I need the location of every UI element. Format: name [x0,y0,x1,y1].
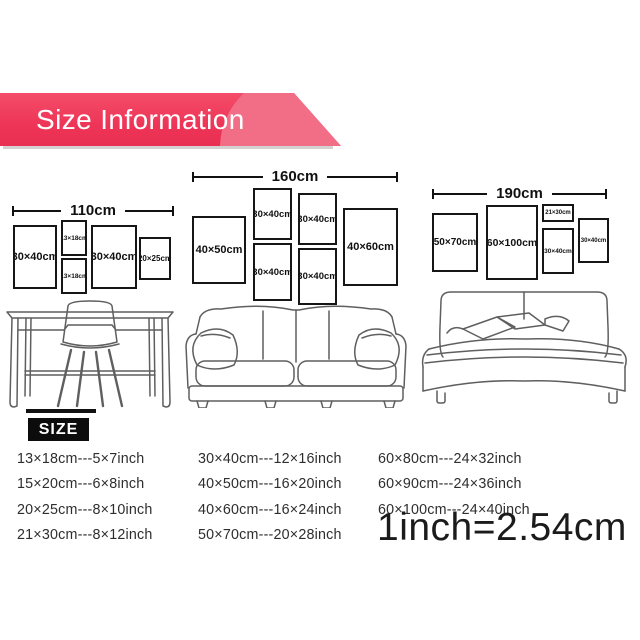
bed-illustration [417,287,637,405]
dimension-segment [327,176,396,178]
frame-40x50cm: 40×50cm [192,216,246,284]
dimension-line-160cm: 160cm [192,170,398,184]
frame-30x40cm: 30×40cm [298,248,337,305]
frame-30x40cm: 30×40cm [298,193,337,245]
size-row: 60×80cm---24×32inch [378,447,530,472]
size-row: 60×90cm---24×36inch [378,472,530,497]
frame-30x40cm: 30×40cm [578,218,609,263]
dimension-label: 190cm [487,187,552,201]
frame-size-label: 30×40cm [13,251,57,263]
dimension-tick-right [605,189,607,199]
size-row: 20×25cm---8×10inch [17,498,153,523]
sofa-illustration [181,302,411,408]
frame-size-label: 30×40cm [298,214,337,225]
frame-13x18cm: 13×18cm [61,258,87,294]
frame-size-label: 13×18cm [61,273,87,280]
size-row: 40×50cm---16×20inch [198,472,342,497]
dimension-segment [14,210,61,212]
size-row: 13×18cm---5×7inch [17,447,153,472]
desk-and-chair-illustration [4,299,176,415]
frame-size-label: 60×100cm [487,237,538,249]
frame-size-label: 21×30cm [545,210,571,216]
dimension-label: 160cm [263,170,328,184]
frame-size-label: 13×18cm [61,235,87,242]
frame-size-label: 30×40cm [581,238,607,244]
dimension-line-190cm: 190cm [432,187,607,201]
banner-title: Size Information [36,93,245,146]
frame-30x40cm: 30×40cm [253,188,292,240]
frame-size-label: 30×40cm [253,209,292,220]
frame-21x30cm: 21×30cm [542,204,574,222]
frame-size-label: 20×25cm [139,254,171,263]
frame-size-label: 30×40cm [253,267,292,278]
dimension-tick-right [396,172,398,182]
size-information-banner: Size Information [0,93,341,146]
size-row: 15×20cm---6×8inch [17,472,153,497]
frame-size-label: 30×40cm [544,248,572,255]
conversion-note: 1inch=2.54cm [377,506,627,550]
frame-size-label: 40×60cm [347,241,394,253]
dimension-segment [194,176,263,178]
size-row: 30×40cm---12×16inch [198,447,342,472]
frame-13x18cm: 13×18cm [61,220,87,256]
size-information-infographic: Size Information 110cm 30×40cm 13×18cm 1… [0,0,640,640]
banner-shadow [3,146,333,149]
frame-size-label: 30×40cm [298,271,337,282]
frame-60x100cm: 60×100cm [486,205,538,280]
frame-40x60cm: 40×60cm [343,208,398,286]
frame-30x40cm: 30×40cm [542,228,574,274]
frame-30x40cm: 30×40cm [91,225,137,289]
dimension-line-110cm: 110cm [12,204,174,218]
frame-size-label: 50×70cm [434,237,477,248]
dimension-segment [434,193,487,195]
size-row: 40×60cm---16×24inch [198,498,342,523]
frame-50x70cm: 50×70cm [432,213,478,272]
size-row: 50×70cm---20×28inch [198,523,342,548]
dimension-tick-right [172,206,174,216]
size-row: 21×30cm---8×12inch [17,523,153,548]
frame-30x40cm: 30×40cm [13,225,57,289]
dimension-segment [125,210,172,212]
size-column-2: 30×40cm---12×16inch 40×50cm---16×20inch … [198,447,342,549]
size-badge: SIZE [28,418,89,441]
dimension-segment [552,193,605,195]
frame-30x40cm: 30×40cm [253,243,292,301]
frame-size-label: 40×50cm [196,244,243,256]
dimension-label: 110cm [61,204,125,218]
size-column-1: 13×18cm---5×7inch 15×20cm---6×8inch 20×2… [17,447,153,549]
frame-size-label: 30×40cm [91,251,137,263]
frame-20x25cm: 20×25cm [139,237,171,280]
